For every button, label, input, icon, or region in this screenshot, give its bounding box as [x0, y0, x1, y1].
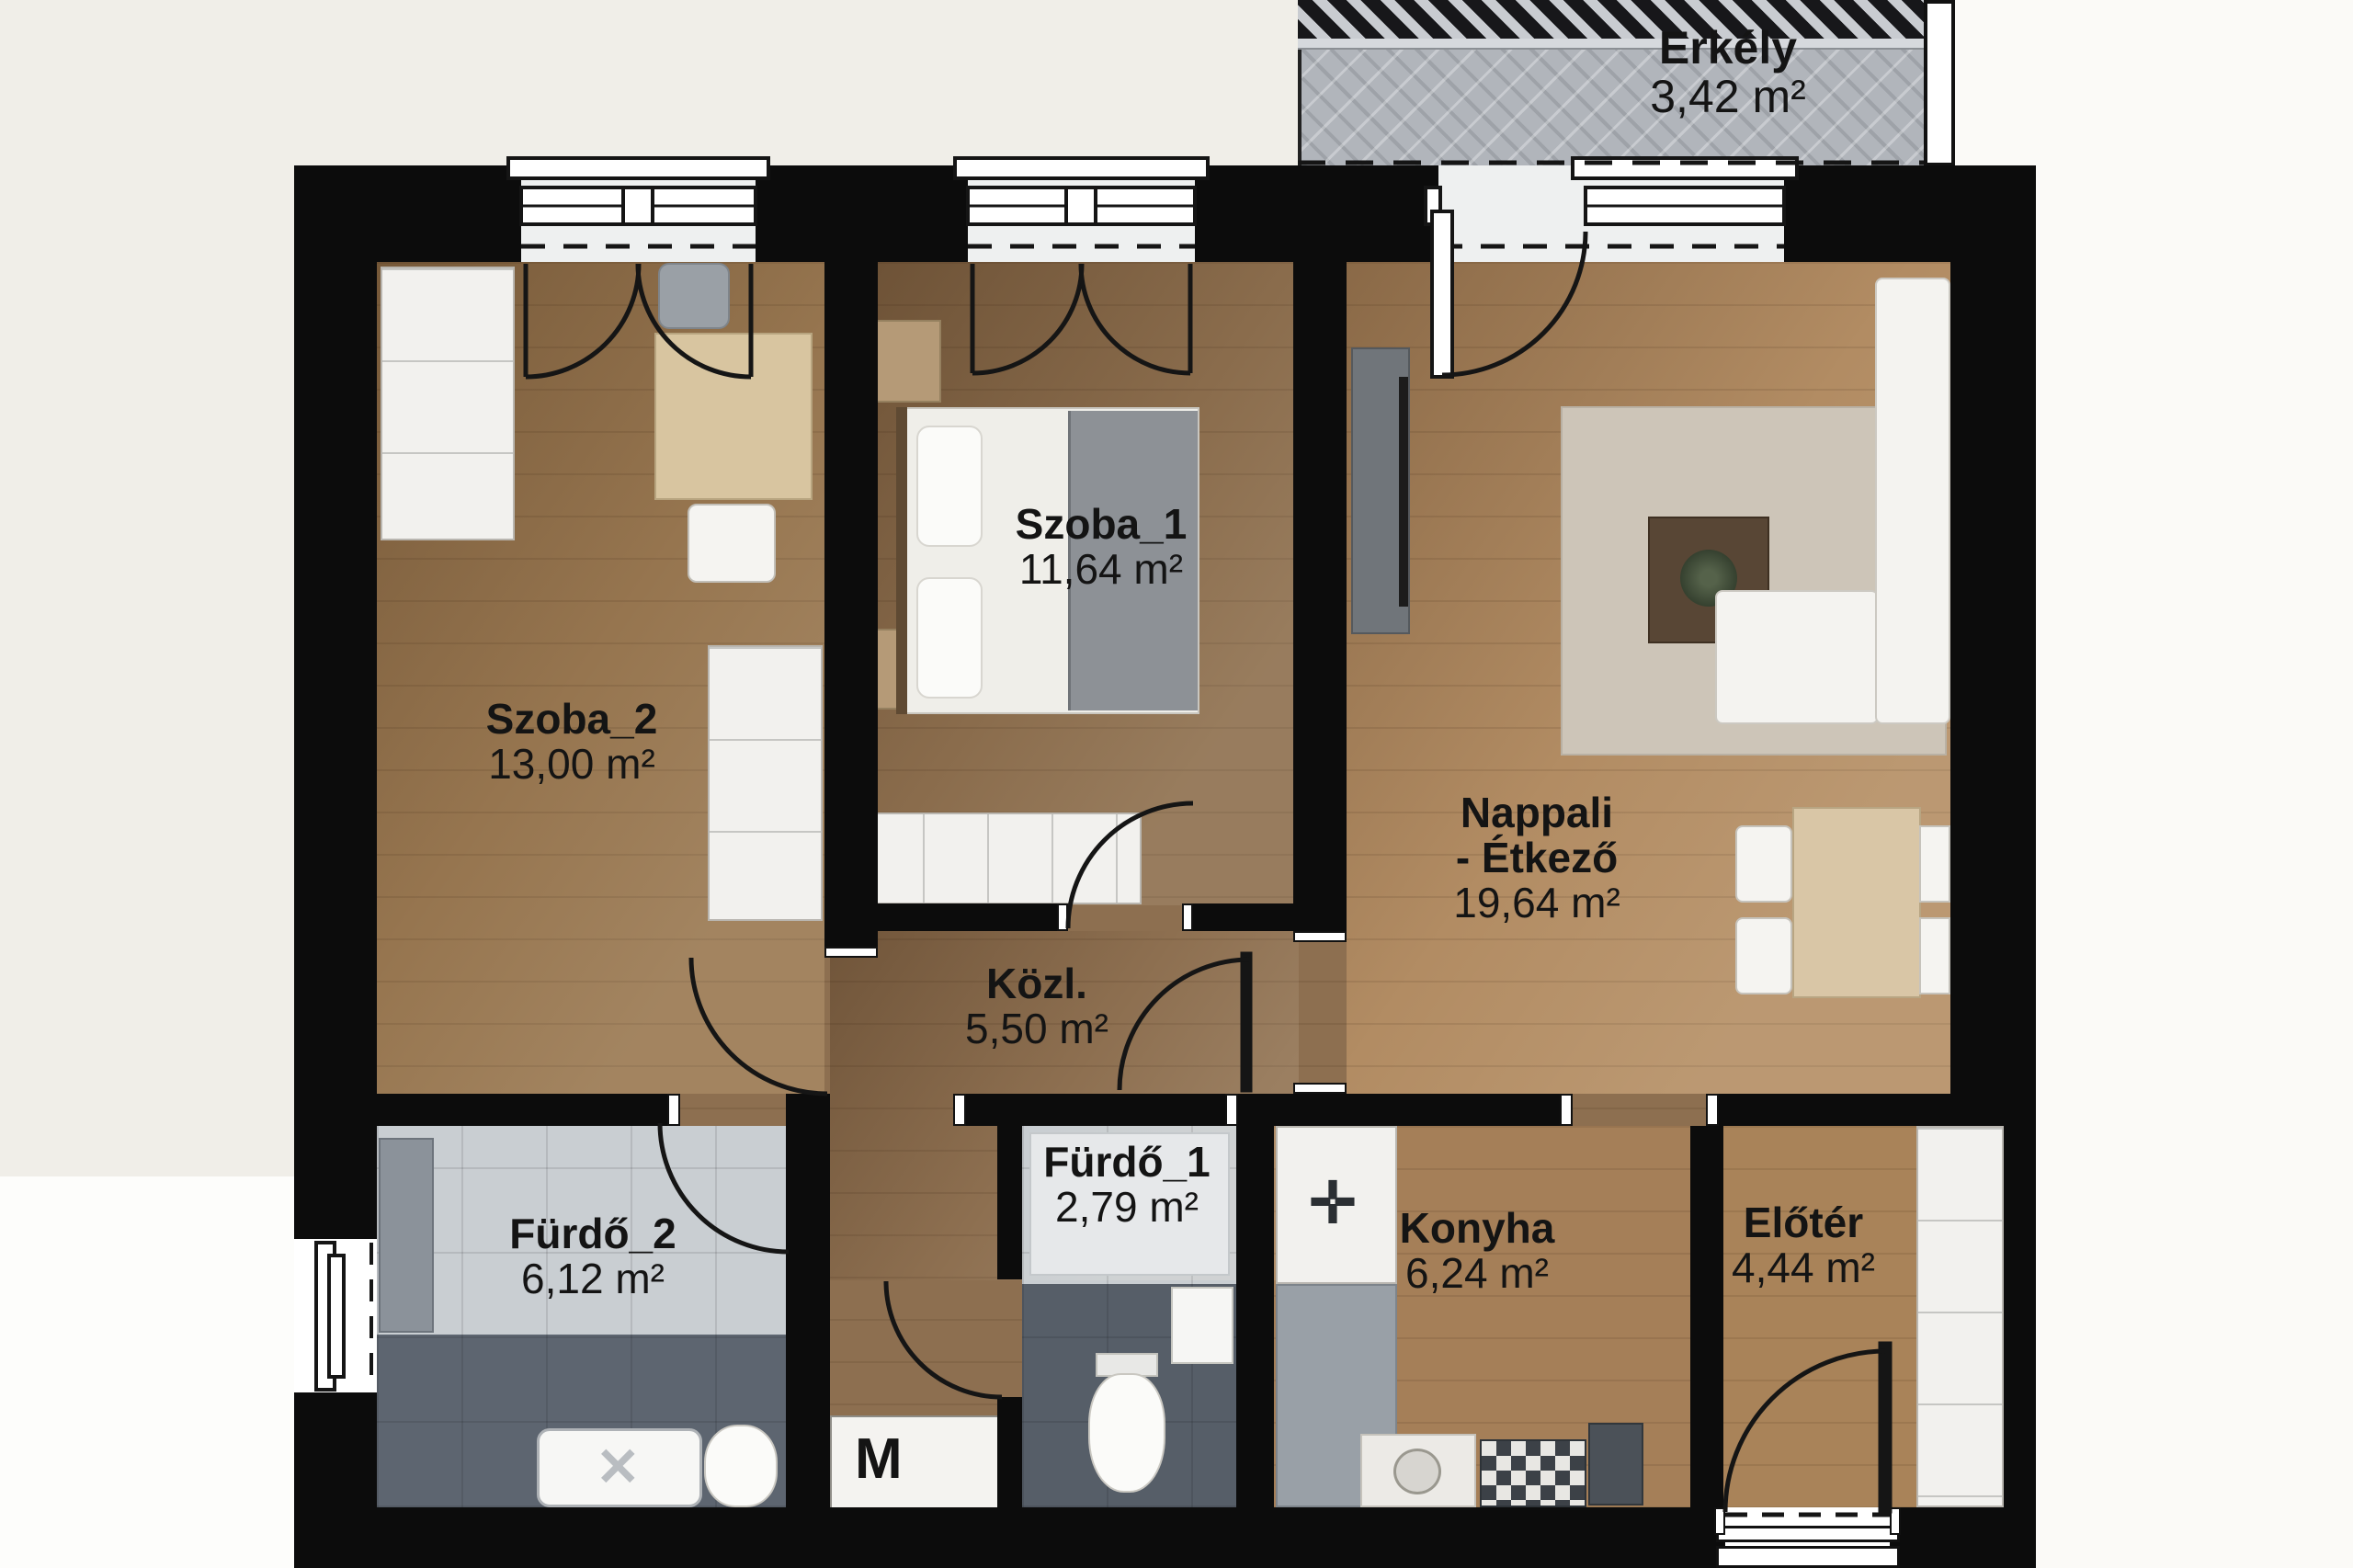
- room-label-furdo2: Fürdő_2 6,12 m²: [509, 1211, 676, 1301]
- window-szoba1: [955, 158, 1208, 373]
- room-label-nappali: Nappali - Étkező 19,64 m²: [1453, 790, 1620, 925]
- door-arc-szoba2: [691, 958, 827, 1094]
- washing-machine-label: M: [855, 1426, 903, 1492]
- plan-linework-overlay: [0, 0, 2353, 1568]
- room-label-erkely: Erkély 3,42 m²: [1650, 24, 1806, 121]
- window-furdo2: [316, 1243, 371, 1390]
- door-arc-furdo1: [886, 1281, 1002, 1397]
- door-arc-szoba1: [1068, 803, 1193, 928]
- room-label-eloter: Előtér 4,44 m²: [1732, 1200, 1875, 1290]
- room-label-szoba2: Szoba_2 13,00 m²: [486, 697, 658, 787]
- floor-plan: ✛ ✕: [0, 0, 2353, 1568]
- room-label-konyha: Konyha 6,24 m²: [1400, 1206, 1555, 1296]
- window-szoba2: [508, 158, 768, 377]
- door-arc-furdo2: [660, 1123, 789, 1252]
- room-label-furdo1: Fürdő_1 2,79 m²: [1043, 1140, 1210, 1230]
- room-label-szoba1: Szoba_1 11,64 m²: [1016, 502, 1188, 592]
- door-kozl-nappali: [1120, 954, 1250, 1090]
- balcony-door-and-window: [1426, 158, 1797, 377]
- room-label-kozl: Közl. 5,50 m²: [965, 961, 1108, 1051]
- entrance-door: [1725, 1344, 1890, 1515]
